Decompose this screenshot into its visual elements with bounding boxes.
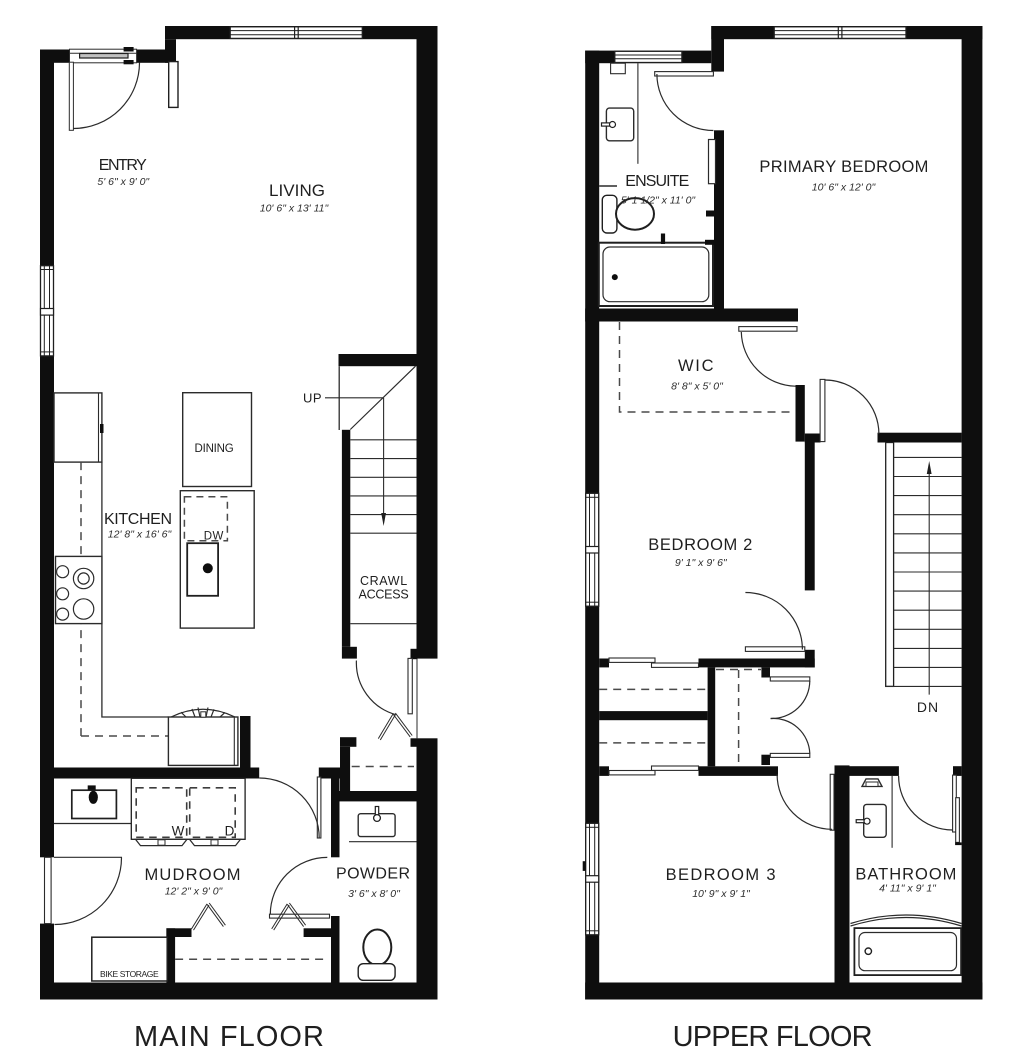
- svg-text:10' 6" x 12' 0": 10' 6" x 12' 0": [812, 182, 877, 194]
- svg-text:ACCESS: ACCESS: [359, 588, 410, 602]
- svg-text:BATHROOM: BATHROOM: [855, 866, 957, 884]
- svg-text:BEDROOM 3: BEDROOM 3: [666, 866, 777, 884]
- svg-text:KITCHEN: KITCHEN: [104, 511, 173, 528]
- svg-text:3' 6" x 8' 0": 3' 6" x 8' 0": [348, 888, 401, 900]
- svg-text:8' 8" x 5' 0": 8' 8" x 5' 0": [671, 381, 724, 393]
- svg-text:BIKE STORAGE: BIKE STORAGE: [100, 969, 159, 979]
- svg-text:DINING: DINING: [195, 443, 235, 455]
- svg-text:BEDROOM 2: BEDROOM 2: [648, 536, 753, 554]
- svg-text:D: D: [225, 824, 235, 839]
- svg-text:UPPER FLOOR: UPPER FLOOR: [673, 1021, 875, 1053]
- svg-text:CRAWL: CRAWL: [360, 574, 408, 588]
- svg-text:W: W: [172, 824, 185, 839]
- svg-text:4' 11" x 9' 1": 4' 11" x 9' 1": [879, 883, 937, 895]
- svg-text:WIC: WIC: [678, 357, 715, 375]
- svg-text:PRIMARY BEDROOM: PRIMARY BEDROOM: [759, 158, 929, 176]
- svg-text:12' 2" x 9' 0": 12' 2" x 9' 0": [165, 886, 224, 898]
- svg-text:MUDROOM: MUDROOM: [145, 866, 242, 884]
- svg-text:10' 6" x 13' 11": 10' 6" x 13' 11": [260, 203, 330, 215]
- svg-text:MAIN FLOOR: MAIN FLOOR: [134, 1021, 326, 1053]
- svg-text:9' 1" x 9' 6": 9' 1" x 9' 6": [675, 557, 728, 569]
- svg-text:UP: UP: [303, 391, 322, 406]
- svg-text:DW: DW: [204, 531, 224, 543]
- svg-text:POWDER: POWDER: [336, 866, 411, 883]
- svg-text:ENTRY: ENTRY: [99, 157, 148, 174]
- svg-text:10' 9" x 9' 1": 10' 9" x 9' 1": [692, 888, 751, 900]
- svg-text:LIVING: LIVING: [269, 181, 326, 200]
- svg-text:ENSUITE: ENSUITE: [625, 173, 690, 190]
- svg-text:12' 8" x 16' 6": 12' 8" x 16' 6": [108, 529, 173, 541]
- svg-text:5' 1 1/2" x 11' 0": 5' 1 1/2" x 11' 0": [621, 195, 697, 207]
- svg-text:DN: DN: [917, 699, 939, 715]
- svg-text:5' 6" x 9' 0": 5' 6" x 9' 0": [97, 176, 150, 188]
